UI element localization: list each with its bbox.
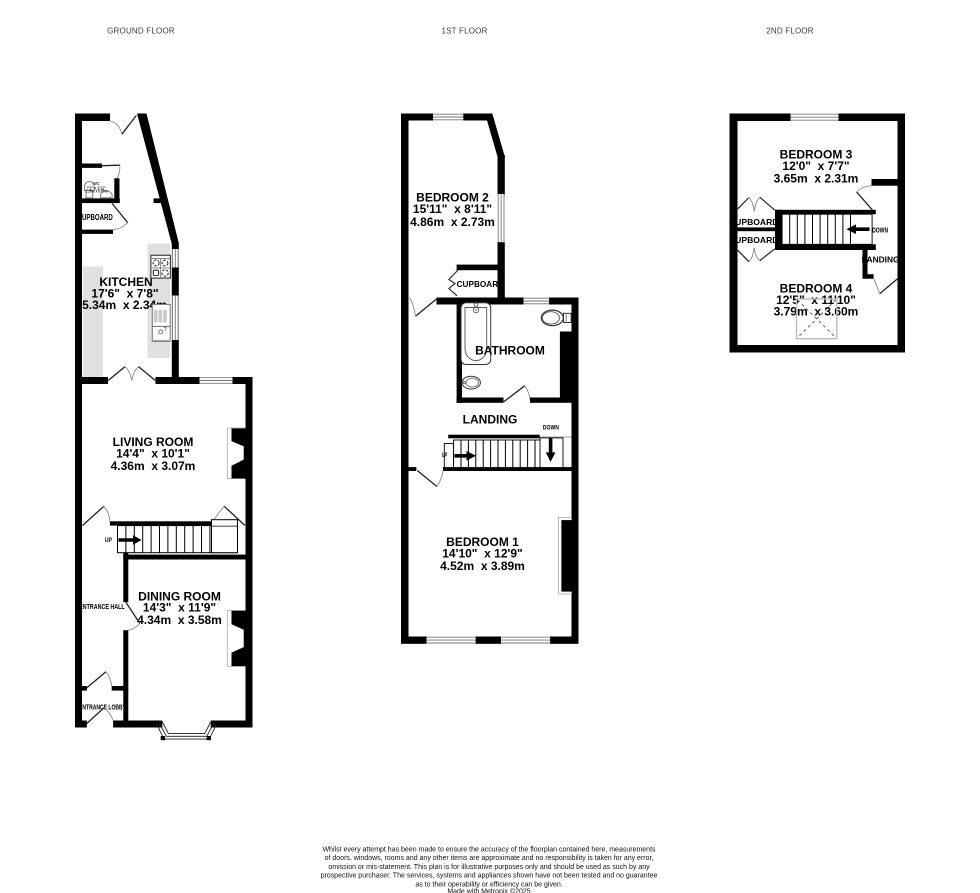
svg-text:ENTRANCE LOBBY: ENTRANCE LOBBY	[79, 703, 126, 712]
svg-text:1ST FLOOR: 1ST FLOOR	[441, 27, 487, 36]
svg-text:DOWN: DOWN	[872, 228, 888, 235]
svg-text:CUPBOARD: CUPBOARD	[457, 279, 505, 289]
svg-text:4.36m x 3.07m: 4.36m x 3.07m	[111, 459, 196, 473]
svg-text:UP: UP	[442, 453, 448, 459]
svg-text:Whilst every attempt has been: Whilst every attempt has been made to en…	[322, 846, 656, 853]
svg-text:as to their operability or eff: as to their operability or efficiency ca…	[415, 881, 562, 888]
svg-text:of doors, windows, rooms and a: of doors, windows, rooms and any other i…	[325, 855, 654, 862]
svg-text:CUPBOARD: CUPBOARD	[78, 213, 113, 222]
svg-text:3.79m x 3.60m: 3.79m x 3.60m	[774, 305, 859, 319]
svg-text:4.34m x 3.58m: 4.34m x 3.58m	[137, 613, 222, 627]
svg-text:3.65m x 2.31m: 3.65m x 2.31m	[774, 172, 859, 186]
svg-text:2.19m x 0.89m: 2.19m x 0.89m	[85, 189, 108, 194]
svg-text:LANDING: LANDING	[463, 413, 518, 427]
svg-text:ENTRANCE HALL: ENTRANCE HALL	[79, 602, 125, 611]
svg-text:Made with Metropix ©2025: Made with Metropix ©2025	[447, 888, 530, 893]
svg-text:2ND FLOOR: 2ND FLOOR	[766, 27, 814, 36]
svg-text:BATHROOM: BATHROOM	[475, 344, 545, 358]
svg-text:UP: UP	[105, 537, 113, 544]
svg-text:prospective purchaser. The ser: prospective purchaser. The services, sys…	[321, 873, 658, 880]
svg-text:15'11" x 8'11": 15'11" x 8'11"	[413, 202, 492, 216]
svg-text:DOWN: DOWN	[543, 425, 559, 431]
svg-text:GROUND FLOOR: GROUND FLOOR	[107, 27, 175, 36]
svg-text:omission or mis-statement. Thi: omission or mis-statement. This plan is …	[328, 864, 650, 871]
svg-text:4.52m x 3.89m: 4.52m x 3.89m	[440, 559, 525, 573]
svg-text:4.86m x 2.73m: 4.86m x 2.73m	[410, 215, 495, 229]
